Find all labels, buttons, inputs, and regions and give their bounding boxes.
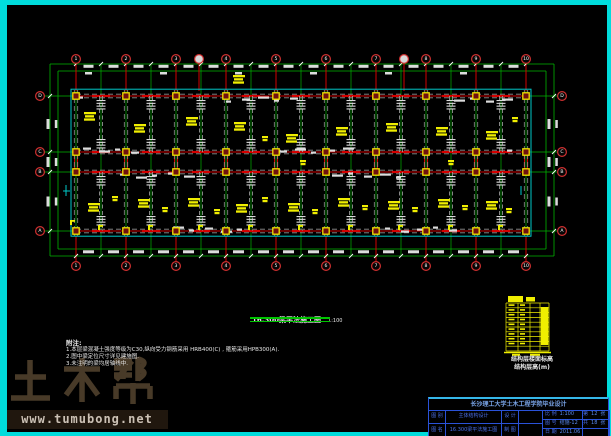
drawing-caption-scale: 1:100: [328, 318, 342, 324]
title-block-sheet-value: 12: [591, 411, 597, 417]
axis-bubble-label: 10: [523, 263, 529, 269]
title-block-signature-cell: [519, 424, 543, 436]
title-block-scale-value: 1:100: [560, 411, 574, 417]
axis-bubble-label: C: [38, 149, 41, 155]
axis-bubble: [195, 55, 204, 64]
title-block-project-line1: 主体结构设计: [446, 410, 502, 424]
axis-bubble: [400, 55, 409, 64]
title-block-total-unit: 张: [600, 420, 605, 426]
axis-bubble-label: 1: [75, 56, 78, 62]
axis-bubble-label: C: [560, 149, 563, 155]
elevation-table-caption: 结构层楼面标高 结构层高(m): [496, 356, 568, 371]
elevation-table: [504, 296, 551, 356]
title-block-total-label: 共: [583, 420, 588, 426]
watermark-url: www.tumubong.net: [6, 410, 168, 429]
axis-bubble-label: D: [38, 93, 42, 99]
title-block-zhitu-label: 制 图: [502, 424, 519, 436]
notes-block: 附注: 1.本层梁混凝土强度等级为C30,纵向受力钢筋采用 HRB400(C) …: [66, 339, 279, 369]
elevation-table-caption-line2: 结构层高(m): [496, 364, 568, 372]
title-block-signature-cell: [519, 410, 543, 424]
title-block-total-value: 18: [591, 420, 597, 426]
title-block-scale-label: 比 例: [545, 411, 557, 417]
title-block-tubie-label: 图 别: [429, 410, 446, 424]
axis-bubble-label: 6: [325, 56, 328, 62]
axis-bubble-label: 2: [125, 56, 128, 62]
title-block-number-value: 结施-12: [560, 420, 578, 426]
axis-bubble-label: 3: [175, 56, 178, 62]
title-block-project-line2: 16.300梁平法施工图: [446, 424, 502, 436]
axis-bubble-label: 9: [475, 263, 478, 269]
title-block-tuming-label: 图 名: [429, 424, 446, 436]
axis-bubble-label: 1: [75, 263, 78, 269]
caption-underline: [250, 317, 330, 319]
axis-bubble-label: 2: [125, 263, 128, 269]
title-block-date-value: 2011.06: [560, 429, 581, 435]
axis-bubble-label: 4: [225, 263, 228, 269]
notes-title: 附注:: [66, 339, 279, 347]
axis-bubble-label: 9: [475, 56, 478, 62]
axis-bubble-label: 8: [425, 263, 428, 269]
caption-underline-thin: [250, 321, 330, 322]
elevation-table-caption-line1: 结构层楼面标高: [496, 356, 568, 364]
slab-outline: [63, 89, 531, 236]
title-block-sheet-label: 第: [583, 411, 588, 417]
cad-drawing-canvas: 1122334455667788991010DDCCBBAA www.tumub…: [0, 0, 611, 436]
title-block-sheji-label: 设 计: [502, 410, 519, 424]
title-block-date-label: 日 期: [545, 429, 557, 435]
title-block-empty-cell: [581, 428, 610, 436]
axis-bubble-label: 3: [175, 263, 178, 269]
axis-bubble-label: B: [560, 169, 563, 175]
note-line: 3.未注明的梁均居轴线中.: [66, 361, 279, 368]
axis-bubble-label: 10: [523, 56, 529, 62]
axis-bubble-label: 6: [325, 263, 328, 269]
axis-bubble-label: 5: [275, 56, 278, 62]
title-block: 长沙理工大学土木工程学院毕业设计 图 别 图 名 主体结构设计 16.300梁平…: [428, 397, 609, 436]
axis-bubble-label: 4: [225, 56, 228, 62]
axis-bubble-label: 7: [375, 56, 378, 62]
title-block-sheet-unit: 张: [600, 411, 605, 417]
title-block-number-label: 图 号: [545, 420, 557, 426]
axis-bubble-label: D: [560, 93, 564, 99]
axis-bubble-label: 8: [425, 56, 428, 62]
axis-bubble-label: 5: [275, 263, 278, 269]
axis-bubble-label: 7: [375, 263, 378, 269]
axis-bubble-label: B: [38, 169, 41, 175]
